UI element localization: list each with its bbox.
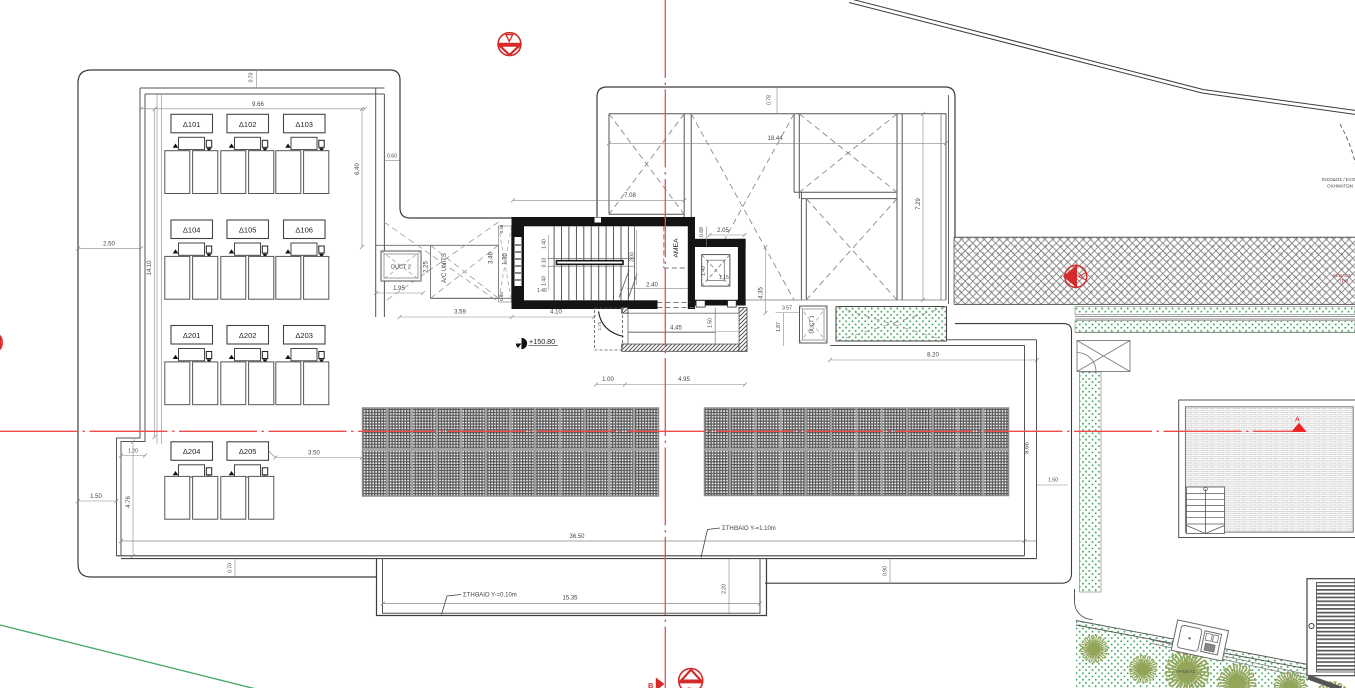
svg-text:2.00: 2.00	[630, 252, 636, 262]
svg-text:+150.80: +150.80	[529, 337, 555, 346]
svg-text:0.10: 0.10	[542, 258, 548, 268]
svg-text:0.70: 0.70	[249, 72, 255, 82]
svg-text:2.40: 2.40	[646, 283, 658, 289]
svg-text:A/C UNITS: A/C UNITS	[442, 253, 448, 283]
svg-text:DUCT 1: DUCT 1	[810, 315, 816, 333]
svg-text:18.44: 18.44	[767, 136, 783, 142]
svg-text:15.35: 15.35	[562, 596, 578, 602]
svg-text:Δ201: Δ201	[183, 331, 201, 340]
svg-text:4.76: 4.76	[126, 496, 132, 508]
svg-text:Δ202: Δ202	[239, 331, 257, 340]
svg-text:ΣΤΗΘΑΙΟ Υ-=0.10m: ΣΤΗΘΑΙΟ Υ-=0.10m	[463, 593, 517, 599]
svg-text:ΟΧΗΜΑΤΩΝ: ΟΧΗΜΑΤΩΝ	[1327, 184, 1353, 189]
svg-text:1.50: 1.50	[90, 494, 102, 500]
svg-text:Δ105: Δ105	[239, 226, 257, 235]
svg-text:1.40: 1.40	[537, 288, 547, 294]
svg-text:1.87: 1.87	[776, 322, 782, 332]
svg-text:7.29: 7.29	[916, 198, 922, 210]
svg-text:ΤΕΜ: ΤΕΜ	[1339, 279, 1348, 284]
svg-text:1.80: 1.80	[503, 253, 509, 265]
svg-text:3.59: 3.59	[454, 310, 466, 316]
svg-text:0.46: 0.46	[499, 224, 504, 233]
svg-text:1.75: 1.75	[597, 321, 602, 330]
svg-text:AMEA: AMEA	[673, 238, 680, 258]
svg-text:0.88: 0.88	[699, 227, 705, 237]
svg-text:1.50: 1.50	[1048, 478, 1058, 484]
svg-text:4.10: 4.10	[550, 310, 562, 316]
svg-text:0.90: 0.90	[883, 566, 889, 576]
svg-text:A: A	[1295, 415, 1300, 424]
svg-text:4.95: 4.95	[678, 377, 690, 383]
svg-text:1.15: 1.15	[719, 275, 729, 281]
svg-text:2.50: 2.50	[103, 242, 115, 248]
svg-text:Δ104: Δ104	[183, 226, 201, 235]
svg-text:6.40: 6.40	[355, 163, 361, 175]
svg-text:1.40: 1.40	[542, 276, 548, 286]
svg-text:1.95: 1.95	[393, 286, 405, 292]
svg-text:2.05: 2.05	[717, 228, 729, 234]
svg-text:ΚΕΩΛΟΣ: ΚΕΩΛΟΣ	[1333, 273, 1351, 278]
svg-text:1.40: 1.40	[701, 266, 707, 276]
svg-text:0.80: 0.80	[499, 292, 504, 301]
svg-text:36.50: 36.50	[569, 534, 585, 540]
svg-text:4.45: 4.45	[670, 326, 682, 332]
svg-text:3.50: 3.50	[308, 451, 320, 457]
svg-text:2.20: 2.20	[722, 584, 728, 594]
svg-text:ΕΙΣΟΔΟΣ / ΕΞΟΔ: ΕΙΣΟΔΟΣ / ΕΞΟΔ	[1322, 177, 1355, 182]
svg-text:8.66: 8.66	[1025, 442, 1031, 454]
svg-text:1.40: 1.40	[542, 239, 548, 249]
svg-text:Δ102: Δ102	[239, 120, 257, 129]
svg-text:Δ203: Δ203	[295, 331, 313, 340]
svg-text:3.46: 3.46	[489, 252, 495, 264]
svg-text:0.78: 0.78	[767, 95, 773, 105]
svg-text:4.35: 4.35	[759, 287, 765, 299]
svg-text:0.70: 0.70	[228, 563, 234, 573]
svg-text:14.10: 14.10	[147, 260, 153, 276]
svg-text:Δ204: Δ204	[183, 447, 201, 456]
svg-text:Δ103: Δ103	[295, 120, 313, 129]
svg-text:Δ106: Δ106	[295, 226, 313, 235]
svg-text:1.00: 1.00	[602, 377, 614, 383]
svg-text:0.60: 0.60	[387, 154, 397, 160]
svg-text:3.57: 3.57	[782, 306, 792, 312]
svg-text:DUCT 2: DUCT 2	[391, 265, 411, 271]
svg-text:ΣΤΗΘΑΙΟ Υ-=1.10m: ΣΤΗΘΑΙΟ Υ-=1.10m	[722, 526, 776, 532]
svg-text:B: B	[648, 681, 654, 688]
svg-text:Δ101: Δ101	[183, 120, 201, 129]
svg-text:8.20: 8.20	[927, 353, 939, 359]
svg-text:9.66: 9.66	[252, 102, 264, 108]
svg-text:1.50: 1.50	[708, 318, 714, 328]
svg-text:7.08: 7.08	[624, 193, 636, 199]
svg-text:Δ205: Δ205	[239, 447, 257, 456]
svg-text:ΑΨΩΝΑΣ: ΑΨΩΝΑΣ	[1176, 669, 1195, 674]
svg-text:2.25: 2.25	[424, 261, 430, 273]
